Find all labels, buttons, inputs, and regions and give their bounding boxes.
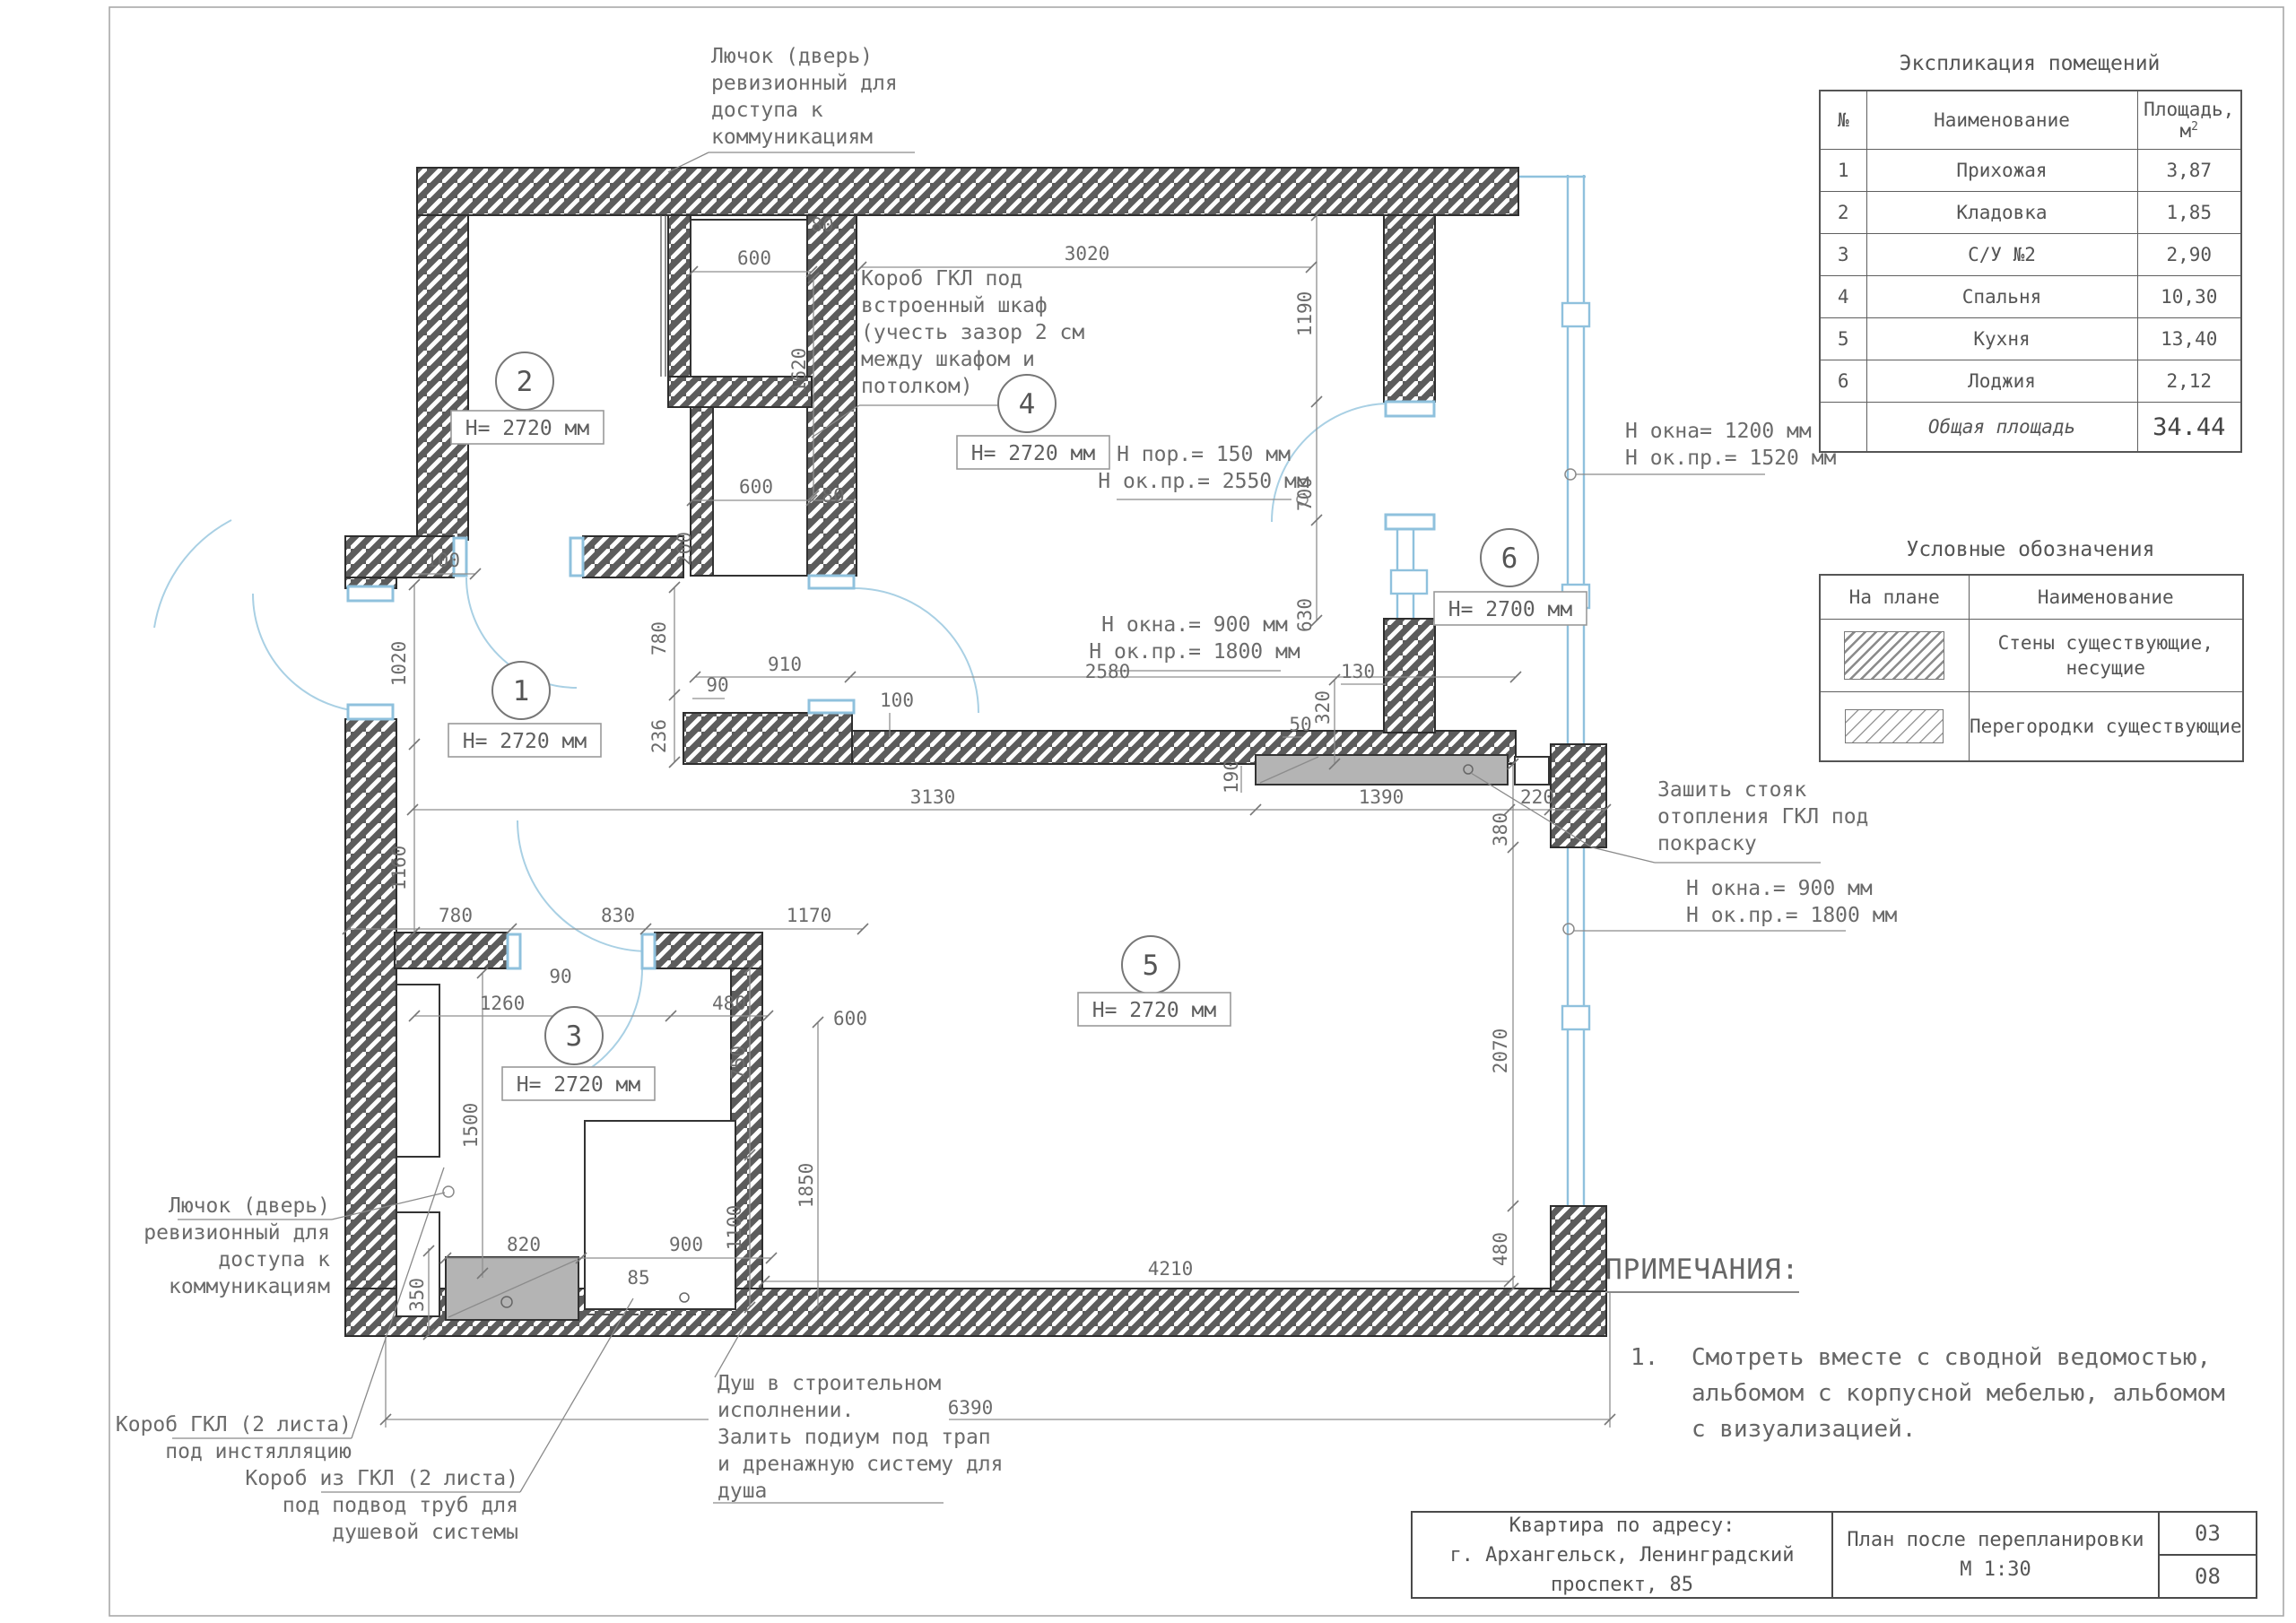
room-number: 6 <box>1501 542 1518 575</box>
legend-name: Перегородки существующие <box>1969 692 2243 762</box>
dimension-label: 200 <box>674 532 695 566</box>
dimension-label: 900 <box>669 1234 703 1255</box>
legend-header-name: Наименование <box>1969 575 2243 620</box>
annotation-window-loggia: Н окна= 1200 мм <box>1625 420 1812 443</box>
dimension-label: 1390 <box>1359 786 1405 808</box>
address-value: г. Архангельск, Ленинградский проспект, … <box>1413 1541 1831 1600</box>
room-name: Спальня <box>1866 276 2137 318</box>
annotation-gkl-wardrobe: потолком) <box>861 375 973 398</box>
explication-header-area: Площадь,м2 <box>2137 91 2241 150</box>
dimension-label: 236 <box>648 719 670 753</box>
annotation-riser: Зашить стояк <box>1657 778 1806 802</box>
room-number: 4 <box>1820 276 1866 318</box>
wall-segment <box>583 536 683 577</box>
annotation-window-kitchen: Н ок.пр.= 1800 мм <box>1686 904 1898 927</box>
dimension-label: 3130 <box>910 786 956 808</box>
dimension-label: 100 <box>426 550 460 571</box>
wall-segment <box>1551 744 1606 847</box>
room-height-label: Н= 2720 мм <box>1092 999 1217 1022</box>
riser-niche <box>1515 757 1549 785</box>
explication-header-num: № <box>1820 91 1866 150</box>
total-empty <box>1820 403 1866 453</box>
glazing-mullion <box>1562 1006 1589 1029</box>
room-height-label: Н= 2720 мм <box>465 417 590 440</box>
wall-segment <box>655 933 762 968</box>
room-area: 2,90 <box>2137 234 2241 276</box>
dimension-label: 1500 <box>460 1103 482 1149</box>
dimension-label: 750 <box>727 1046 749 1080</box>
dimension-label: 220 <box>1520 786 1554 808</box>
annotation-gkl-wardrobe: Короб ГКЛ под <box>861 267 1022 291</box>
explication-title: Экспликация помещений <box>1819 52 2240 75</box>
explication-row: 1Прихожая3,87 <box>1820 150 2241 192</box>
annotation-shower: Залить подиум под трап <box>717 1426 991 1449</box>
room-number: 4 <box>1019 388 1036 421</box>
explication-header-row: № Наименование Площадь,м2 <box>1820 91 2241 150</box>
title-block: Квартира по адресу: г. Архангельск, Лени… <box>1411 1511 2257 1599</box>
annotation-gkl-pipes: под подвод труб для <box>283 1494 518 1517</box>
wall-segment <box>1384 619 1435 733</box>
leader-point <box>443 1186 454 1197</box>
dimension-label: 190 <box>1221 759 1242 794</box>
annotation-riser: покраску <box>1657 832 1757 855</box>
room-height-label: Н= 2700 мм <box>1448 598 1573 621</box>
room-number: 3 <box>566 1020 583 1053</box>
annotation-shower: душа <box>717 1480 767 1503</box>
dimension-label: 6390 <box>948 1397 994 1419</box>
sheets-total: 08 <box>2160 1556 2256 1597</box>
room-area: 1,85 <box>2137 192 2241 234</box>
installation-box <box>396 985 439 1157</box>
door-frame <box>348 586 393 601</box>
dimension-label: 480 <box>1490 1232 1511 1266</box>
room-name: Кладовка <box>1866 192 2137 234</box>
dimension-label: 1620 <box>788 348 810 394</box>
wall-segment <box>395 933 508 968</box>
dimension-label: 1190 <box>1294 291 1316 337</box>
annotation-hatch-bottom: коммуникациям <box>169 1275 330 1298</box>
dimension-label: 380 <box>1490 812 1511 846</box>
dimension-label: 1100 <box>724 1205 745 1251</box>
legend-swatch-cell <box>1820 620 1969 692</box>
room-name: С/У №2 <box>1866 234 2137 276</box>
title-block-address-cell: Квартира по адресу: г. Архангельск, Лени… <box>1413 1513 1833 1597</box>
loggia-window-sill <box>1391 570 1427 594</box>
annotation-hatch-bottom: доступа к <box>218 1248 330 1271</box>
explication-row: 6Лоджия2,12 <box>1820 360 2241 403</box>
dimension-label: 100 <box>880 690 914 711</box>
legend-body: На плане Наименование Стены существующие… <box>1820 575 2243 761</box>
room-number: 5 <box>1143 950 1160 982</box>
annotation-window-loggia: Н ок.пр.= 1520 мм <box>1625 447 1837 470</box>
dimension-label: 910 <box>768 654 802 675</box>
door-frame <box>348 705 393 719</box>
dimension-label: 85 <box>627 1267 649 1289</box>
dimension-label: 80 <box>811 214 833 236</box>
notes-items: 1.Смотреть вместе с сводной ведомостью, … <box>1605 1340 2269 1447</box>
annotation-riser: отопления ГКЛ под <box>1657 805 1868 829</box>
drawing-name: План после перепланировки <box>1833 1525 2158 1555</box>
note-text: Смотреть вместе с сводной ведомостью, ал… <box>1692 1340 2230 1447</box>
legend-title: Условные обозначения <box>1819 538 2242 561</box>
annotation-shower: исполнении. <box>717 1399 854 1422</box>
room-area: 2,12 <box>2137 360 2241 403</box>
door-frame <box>1386 515 1434 529</box>
dimension-label: 4210 <box>1148 1258 1194 1280</box>
annotation-hatch-bottom: ревизионный для <box>143 1221 330 1245</box>
annotation-gkl-wardrobe: (учесть зазор 2 см <box>861 321 1084 344</box>
dimension-label: 320 <box>1312 690 1334 725</box>
dimension-label: 1160 <box>388 846 410 891</box>
annotation-door-heights: Н ок.пр.= 2550 мм <box>1098 470 1309 493</box>
annotation-window-mid: Н ок.пр.= 1800 мм <box>1089 640 1300 664</box>
dimension-label: 600 <box>739 476 773 498</box>
legend-row: Стены существующие, несущие <box>1820 620 2243 692</box>
wall-segment <box>683 713 852 764</box>
dimension-label: 1260 <box>480 993 526 1014</box>
room-height-label: Н= 2720 мм <box>517 1073 641 1097</box>
annotation-hatch-top: Лючок (дверь) <box>711 45 873 68</box>
room-area: 13,40 <box>2137 318 2241 360</box>
room-number: 2 <box>1820 192 1866 234</box>
annotation-leader <box>1592 847 1655 863</box>
sheet-number: 03 <box>2160 1513 2256 1556</box>
dimension-label: 1020 <box>388 641 410 687</box>
room-area: 3,87 <box>2137 150 2241 192</box>
annotation-hatch-top: ревизионный для <box>711 72 898 95</box>
annotation-window-kitchen: Н окна.= 900 мм <box>1686 877 1873 900</box>
room-height-label: Н= 2720 мм <box>463 730 587 753</box>
dimension-label: 2580 <box>1085 661 1131 682</box>
legend-table: На плане Наименование Стены существующие… <box>1819 574 2244 762</box>
dimension-label: 820 <box>507 1234 541 1255</box>
glazing-mullion <box>1562 303 1589 326</box>
door-frame <box>570 538 583 576</box>
room-name: Лоджия <box>1866 360 2137 403</box>
legend-panel: На плане Наименование Стены существующие… <box>1819 574 2244 762</box>
legend-name: Стены существующие, несущие <box>1969 620 2243 692</box>
dimension-label: 830 <box>601 905 635 926</box>
dimension-label: 2070 <box>1490 1028 1511 1074</box>
total-area: 34.44 <box>2137 403 2241 453</box>
explication-row: 4Спальня10,30 <box>1820 276 2241 318</box>
title-block-number-cell: 03 08 <box>2160 1513 2256 1597</box>
heating-riser-box <box>1256 755 1508 785</box>
annotation-gkl-installation: под инстялляцию <box>165 1440 352 1463</box>
dimension-label: 780 <box>439 905 473 926</box>
explication-table: № Наименование Площадь,м2 1Прихожая3,872… <box>1819 90 2242 453</box>
door-frame <box>642 934 655 968</box>
annotation-shower: Душ в строительном <box>717 1372 941 1395</box>
dimension-label: 3020 <box>1065 243 1110 265</box>
wall-hatch-swatch <box>1844 631 1944 680</box>
annotation-gkl-pipes: Короб из ГКЛ (2 листа) <box>245 1467 518 1490</box>
room-number: 1 <box>513 675 530 707</box>
title-block-drawing-cell: План после перепланировки М 1:30 <box>1833 1513 2160 1597</box>
annotation-hatch-top: доступа к <box>711 99 823 122</box>
dimension-label: 480 <box>712 993 746 1014</box>
drawing-scale: М 1:30 <box>1833 1555 2158 1584</box>
shower-enclosure <box>585 1121 735 1309</box>
legend-swatch-cell <box>1820 692 1969 762</box>
dimension-label: 600 <box>737 247 771 269</box>
dimension-label: 350 <box>406 1278 428 1312</box>
explication-header-name: Наименование <box>1866 91 2137 150</box>
door-arc-bedroom <box>854 588 978 713</box>
room-name: Кухня <box>1866 318 2137 360</box>
annotation-window-mid: Н окна.= 900 мм <box>1101 613 1288 637</box>
notes-title: ПРИМЕЧАНИЯ: <box>1605 1254 1799 1293</box>
dimension-label: 50 <box>1289 714 1311 735</box>
dimension-label: 630 <box>1294 598 1316 632</box>
annotation-gkl-wardrobe: встроенный шкаф <box>861 294 1048 317</box>
dimension-label: 1850 <box>796 1163 817 1209</box>
dimension-label: 80 <box>822 485 844 507</box>
room-number: 5 <box>1820 318 1866 360</box>
door-frame <box>809 576 854 588</box>
explication-row: 2Кладовка1,85 <box>1820 192 2241 234</box>
door-arc-hall <box>517 820 648 951</box>
annotation-hatch-top: коммуникациям <box>711 126 873 149</box>
wall-segment <box>1551 1206 1606 1291</box>
wall-segment <box>417 168 1518 215</box>
legend-header-plan: На плане <box>1820 575 1969 620</box>
door-frame <box>1386 402 1434 416</box>
explication-total-row: Общая площадь34.44 <box>1820 403 2241 453</box>
room-name: Прихожая <box>1866 150 2137 192</box>
room-height-label: Н= 2720 мм <box>971 442 1096 465</box>
door-frame <box>508 934 520 968</box>
explication-row: 5Кухня13,40 <box>1820 318 2241 360</box>
legend-row: Перегородки существующие <box>1820 692 2243 762</box>
wall-segment <box>1384 215 1435 402</box>
note-number: 1. <box>1605 1340 1692 1447</box>
wall-segment <box>417 215 468 540</box>
notes-panel: ПРИМЕЧАНИЯ: 1.Смотреть вместе с сводной … <box>1605 1254 2269 1447</box>
annotation-gkl-wardrobe: между шкафом и <box>861 348 1035 371</box>
dimension-label: 90 <box>706 674 728 696</box>
explication-body: № Наименование Площадь,м2 1Прихожая3,872… <box>1820 91 2241 452</box>
dimension-label: 780 <box>648 621 670 655</box>
explication-panel: № Наименование Площадь,м2 1Прихожая3,872… <box>1819 90 2242 453</box>
address-label: Квартира по адресу: <box>1413 1511 1831 1541</box>
annotation-gkl-installation: Короб ГКЛ (2 листа) <box>116 1413 352 1436</box>
note-item: 1.Смотреть вместе с сводной ведомостью, … <box>1605 1340 2269 1447</box>
annotation-door-heights: Н пор.= 150 мм <box>1117 443 1291 466</box>
dimension-label: 130 <box>1341 661 1375 682</box>
dimension-label: 1170 <box>787 905 832 926</box>
partition-hatch-swatch <box>1845 709 1944 743</box>
room-number: 3 <box>1820 234 1866 276</box>
door-arc-entrance <box>253 594 371 712</box>
total-label: Общая площадь <box>1866 403 2137 453</box>
annotation-hatch-bottom: Лючок (дверь) <box>169 1194 330 1218</box>
room-number: 1 <box>1820 150 1866 192</box>
room-area: 10,30 <box>2137 276 2241 318</box>
door-frame <box>809 700 854 713</box>
explication-row: 3С/У №22,90 <box>1820 234 2241 276</box>
dimension-label: 600 <box>833 1008 867 1029</box>
door-arc-outside <box>154 520 231 628</box>
room-number: 2 <box>517 366 534 398</box>
annotation-shower: и дренажную систему для <box>717 1453 1004 1476</box>
room-number: 6 <box>1820 360 1866 403</box>
legend-header-row: На плане Наименование <box>1820 575 2243 620</box>
dimension-label: 90 <box>549 966 571 987</box>
annotation-gkl-pipes: душевой системы <box>332 1521 518 1544</box>
wall-segment <box>345 719 396 1336</box>
